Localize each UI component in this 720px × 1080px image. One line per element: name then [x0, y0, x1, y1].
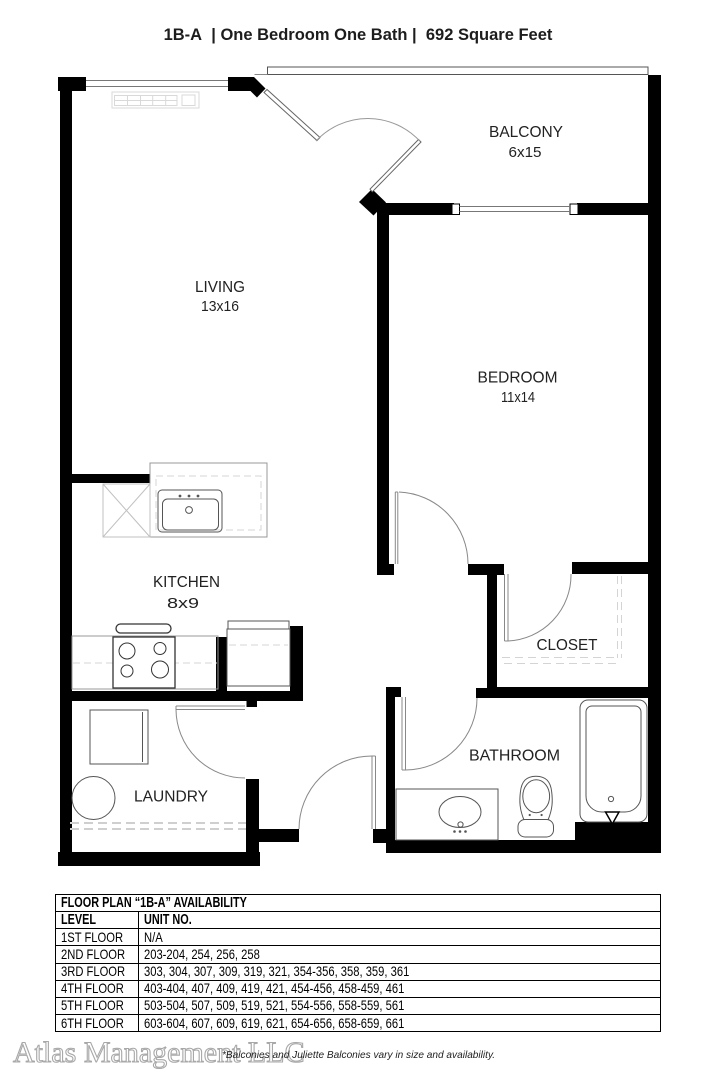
svg-text:BEDROOM: BEDROOM [478, 370, 558, 387]
svg-text:8x9: 8x9 [167, 595, 199, 612]
svg-text:6x15: 6x15 [509, 144, 542, 161]
svg-text:BALCONY: BALCONY [489, 124, 563, 141]
svg-text:LAUNDRY: LAUNDRY [134, 789, 208, 806]
svg-text:LIVING: LIVING [195, 279, 245, 296]
svg-text:BATHROOM: BATHROOM [469, 748, 560, 765]
svg-text:CLOSET: CLOSET [537, 637, 598, 654]
svg-text:11x14: 11x14 [501, 389, 535, 406]
svg-text:13x16: 13x16 [201, 298, 239, 315]
svg-text:KITCHEN: KITCHEN [153, 574, 220, 591]
